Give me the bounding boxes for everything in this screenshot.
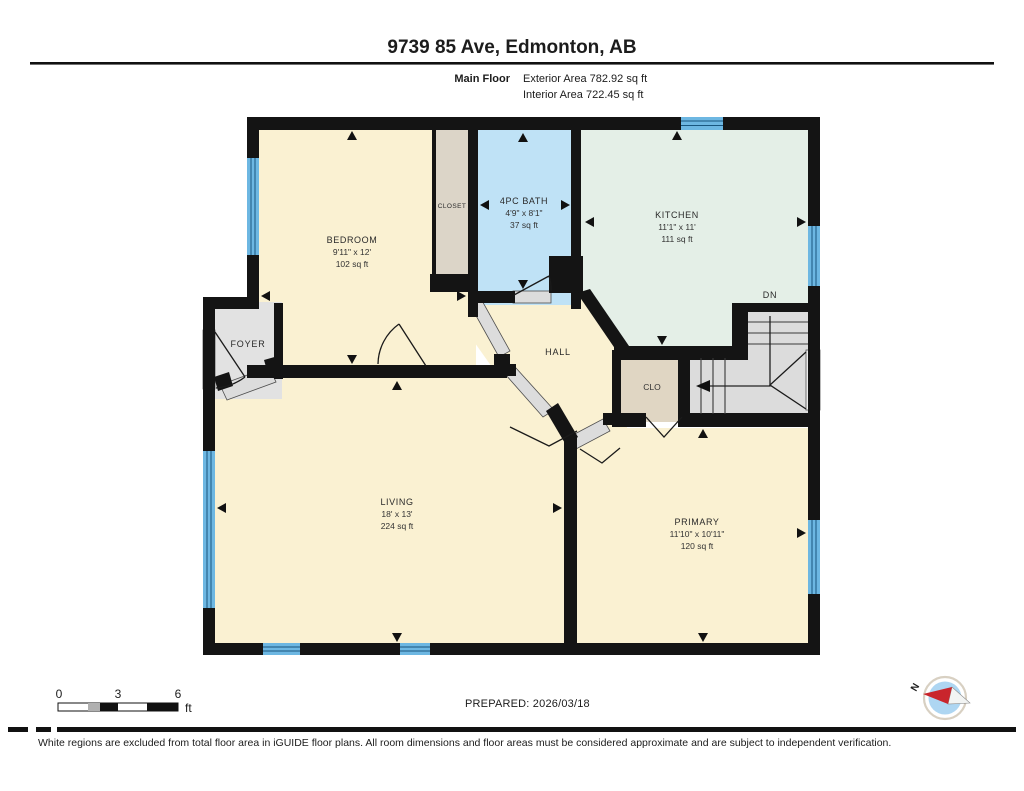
window-living-bottom-left — [263, 643, 300, 655]
floor-plan-page: 9739 85 Ave, Edmonton, AB Main Floor Ext… — [0, 0, 1024, 791]
floor-plan-canvas: 9739 85 Ave, Edmonton, AB Main Floor Ext… — [0, 0, 1024, 791]
compass-icon: N — [909, 677, 970, 719]
label-kitchen: KITCHEN — [655, 210, 699, 220]
label-kitchen-dims: 11'1" x 11' — [658, 222, 696, 232]
window-living-bottom-right — [400, 643, 430, 655]
window-kitchen-top — [681, 117, 723, 130]
compass-north-label: N — [909, 682, 922, 694]
scale-tick-3: 3 — [115, 687, 122, 701]
label-stairs-dn: DN — [763, 290, 778, 300]
label-primary-dims: 11'10" x 10'11" — [670, 529, 725, 539]
scale-bar: 0 3 6 ft — [56, 687, 193, 715]
label-hall: HALL — [545, 347, 571, 357]
label-living: LIVING — [380, 497, 413, 507]
window-kitchen-right — [808, 226, 820, 286]
header: 9739 85 Ave, Edmonton, AB Main Floor Ext… — [30, 37, 994, 101]
window-living-left — [203, 451, 215, 608]
disclaimer-text: White regions are excluded from total fl… — [38, 737, 891, 749]
label-bath: 4PC BATH — [500, 196, 548, 206]
scale-tick-0: 0 — [56, 687, 63, 701]
exterior-area-label: Exterior Area 782.92 sq ft — [523, 73, 647, 85]
window-bedroom-left — [247, 158, 259, 255]
floor-label: Main Floor — [454, 73, 510, 85]
footer: White regions are excluded from total fl… — [8, 727, 1016, 749]
label-primary-area: 120 sq ft — [681, 541, 714, 551]
label-bedroom-area: 102 sq ft — [336, 259, 369, 269]
label-living-area: 224 sq ft — [381, 521, 414, 531]
label-clo: CLO — [643, 382, 661, 392]
label-foyer: FOYER — [230, 339, 265, 349]
label-bedroom: BEDROOM — [327, 235, 378, 245]
label-bath-area: 37 sq ft — [510, 220, 539, 230]
label-primary: PRIMARY — [674, 517, 719, 527]
header-divider — [30, 62, 994, 65]
label-closet: CLOSET — [438, 203, 466, 210]
label-bath-dims: 4'9" x 8'1" — [505, 208, 542, 218]
scale-tick-6: 6 — [175, 687, 182, 701]
label-living-dims: 18' x 13' — [381, 509, 413, 519]
label-kitchen-area: 111 sq ft — [661, 234, 693, 244]
window-primary-right — [808, 520, 820, 594]
page-title: 9739 85 Ave, Edmonton, AB — [387, 37, 636, 58]
label-bedroom-dims: 9'11" x 12' — [333, 247, 372, 257]
prepared-date: PREPARED: 2026/03/18 — [465, 698, 590, 710]
interior-area-label: Interior Area 722.45 sq ft — [523, 89, 643, 101]
scale-unit: ft — [185, 701, 192, 715]
